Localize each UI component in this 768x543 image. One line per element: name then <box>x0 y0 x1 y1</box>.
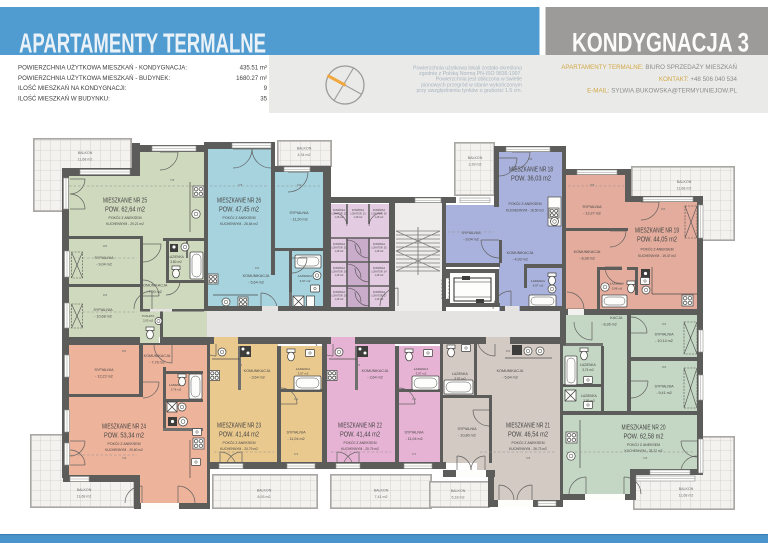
svg-text:POKÓJ Z ANEKSEM: POKÓJ Z ANEKSEM <box>223 215 256 220</box>
svg-text:- 4,93 m2: - 4,93 m2 <box>512 258 528 262</box>
svg-text:ŁAZIENKA: ŁAZIENKA <box>168 255 184 259</box>
svg-text:SYPIALNIA: SYPIALNIA <box>93 308 113 312</box>
svg-text:3,97 m2: 3,97 m2 <box>300 279 311 283</box>
svg-text:ŁAZIENKA: ŁAZIENKA <box>452 372 468 376</box>
svg-text:E-MAIL: SYLWIA.BUKOWSKA@TERMYU: E-MAIL: SYLWIA.BUKOWSKA@TERMYUNIEJOW.PL <box>587 88 737 95</box>
svg-text:405: 405 <box>238 363 243 367</box>
svg-text:1,28 m2: 1,28 m2 <box>335 298 344 301</box>
svg-text:APARTAMENTY TERMALNE: BIURO SP: APARTAMENTY TERMALNE: BIURO SPRZEDAŻY MI… <box>561 64 737 71</box>
svg-text:KOMUNIKACJA: KOMUNIKACJA <box>244 369 271 373</box>
svg-text:3,76 m2: 3,76 m2 <box>171 388 182 392</box>
svg-text:3,39 m2: 3,39 m2 <box>469 163 482 167</box>
svg-text:MIESZKANIE NR 24: MIESZKANIE NR 24 <box>102 424 146 431</box>
svg-text:4,97 m2: 4,97 m2 <box>533 284 544 288</box>
svg-text:SYPIALNIA: SYPIALNIA <box>582 205 602 209</box>
svg-text:BALKON: BALKON <box>77 488 92 492</box>
svg-text:274: 274 <box>412 397 417 401</box>
svg-text:POKÓJ Z ANEKSEM: POKÓJ Z ANEKSEM <box>512 440 545 445</box>
svg-text:SYPIALNIA: SYPIALNIA <box>94 368 114 372</box>
svg-text:BALKON: BALKON <box>468 156 483 160</box>
svg-text:1,28 m2: 1,28 m2 <box>335 250 344 253</box>
svg-text:728: 728 <box>643 456 648 460</box>
svg-text:KUCHENNYM - 20,79 m2: KUCHENNYM - 20,79 m2 <box>341 447 379 451</box>
svg-text:ŁAZIENKA: ŁAZIENKA <box>296 367 311 371</box>
svg-text:KONTAKT: +48 506 040 534: KONTAKT: +48 506 040 534 <box>659 76 738 83</box>
svg-text:286: 286 <box>122 349 127 353</box>
svg-text:- 12,22 m2: - 12,22 m2 <box>95 375 113 379</box>
svg-text:ILOŚĆ MIESZKAŃ NA KONDYGNACJI:: ILOŚĆ MIESZKAŃ NA KONDYGNACJI: <box>18 84 127 92</box>
svg-text:- 8,38 m2: - 8,38 m2 <box>579 257 595 261</box>
svg-text:11,68 m2: 11,68 m2 <box>679 494 694 498</box>
svg-text:8,93 m2: 8,93 m2 <box>258 495 271 499</box>
svg-text:2,03 m2: 2,03 m2 <box>143 319 154 323</box>
svg-text:- 5,64 m2: - 5,64 m2 <box>248 281 264 285</box>
svg-text:MIESZKANIE NR 26: MIESZKANIE NR 26 <box>217 198 261 205</box>
svg-text:MIESZKANIE NR 22: MIESZKANIE NR 22 <box>338 423 382 430</box>
svg-text:35: 35 <box>260 95 267 102</box>
svg-text:MIESZKANIE NR 21: MIESZKANIE NR 21 <box>506 423 550 430</box>
svg-text:- 10,80 m2: - 10,80 m2 <box>458 434 476 438</box>
svg-text:POKÓJ Z ANEKSEM: POKÓJ Z ANEKSEM <box>109 215 142 220</box>
svg-text:BALKON: BALKON <box>451 489 466 493</box>
svg-text:POKÓJ Z ANEKSEM: POKÓJ Z ANEKSEM <box>223 440 256 445</box>
svg-text:738: 738 <box>170 178 175 182</box>
svg-text:- 9,41 m2: - 9,41 m2 <box>656 391 672 395</box>
svg-text:1,28 m2: 1,28 m2 <box>354 216 363 219</box>
svg-text:366: 366 <box>662 365 667 369</box>
svg-text:KOMUNIKACJA: KOMUNIKACJA <box>497 369 524 373</box>
svg-text:MIESZKANIE NR 19: MIESZKANIE NR 19 <box>635 228 679 235</box>
svg-text:ŁAZIENKA: ŁAZIENKA <box>580 363 596 367</box>
svg-text:MIESZKANIE NR 20: MIESZKANIE NR 20 <box>622 425 666 432</box>
svg-text:- 7,00 m2: - 7,00 m2 <box>146 290 162 294</box>
svg-text:1,28 m2: 1,28 m2 <box>375 274 384 277</box>
svg-text:11,68 m2: 11,68 m2 <box>677 187 692 191</box>
svg-text:SYPIALNIA: SYPIALNIA <box>404 431 424 435</box>
svg-text:KUCHENNYM - 19,47 m2: KUCHENNYM - 19,47 m2 <box>638 254 676 258</box>
svg-text:- 5,64 m2: - 5,64 m2 <box>502 376 518 380</box>
svg-text:KUCHENNYM - 26,73 m2: KUCHENNYM - 26,73 m2 <box>509 447 547 451</box>
svg-text:POWIERZCHNIA UŻYTKOWA MIESZKAŃ: POWIERZCHNIA UŻYTKOWA MIESZKAŃ - KONDYGN… <box>18 65 187 72</box>
svg-text:1,28 m2: 1,28 m2 <box>335 274 344 277</box>
svg-text:288: 288 <box>528 157 533 161</box>
svg-text:435.51 m²: 435.51 m² <box>240 65 267 72</box>
svg-text:KOMUNIKACJA: KOMUNIKACJA <box>507 251 534 255</box>
svg-text:APARTAMENTY TERMALNE: APARTAMENTY TERMALNE <box>19 28 266 59</box>
svg-text:KONDYGNACJA 3: KONDYGNACJA 3 <box>572 28 749 58</box>
svg-text:POKÓJ Z ANEKSEM: POKÓJ Z ANEKSEM <box>344 440 377 445</box>
svg-text:5,18 m2: 5,18 m2 <box>452 496 465 500</box>
svg-text:ILOŚĆ MIESZKAŃ W BUDYNKU:: ILOŚĆ MIESZKAŃ W BUDYNKU: <box>18 94 110 102</box>
svg-text:POW. 62,64 m2: POW. 62,64 m2 <box>105 206 145 213</box>
svg-text:278: 278 <box>238 183 243 187</box>
svg-text:KOMUNIKACJA: KOMUNIKACJA <box>144 354 171 358</box>
svg-text:7,41 m2: 7,41 m2 <box>375 495 388 499</box>
svg-text:POW. 41,44 m2: POW. 41,44 m2 <box>219 431 259 438</box>
svg-text:BALKON: BALKON <box>78 151 93 155</box>
svg-text:- 10,14 m2: - 10,14 m2 <box>655 339 673 343</box>
svg-text:306: 306 <box>103 293 108 297</box>
svg-text:3,97 m2: 3,97 m2 <box>416 372 427 376</box>
svg-text:728: 728 <box>526 456 531 460</box>
svg-text:POW. 47,45 m2: POW. 47,45 m2 <box>219 206 259 213</box>
svg-text:BALKON: BALKON <box>677 180 692 184</box>
svg-text:POW. 36,03 m2: POW. 36,03 m2 <box>511 175 551 182</box>
svg-text:1,28 m2: 1,28 m2 <box>375 216 384 219</box>
svg-text:POKÓJ Z ANEKSEM: POKÓJ Z ANEKSEM <box>641 247 674 252</box>
svg-text:SYPIALNIA: SYPIALNIA <box>461 231 481 235</box>
svg-text:TOALETA: TOALETA <box>142 314 155 318</box>
svg-text:KUCHENNYM - 26,64 m2: KUCHENNYM - 26,64 m2 <box>220 222 258 226</box>
svg-text:KOMUNIKACJA: KOMUNIKACJA <box>574 250 601 254</box>
svg-text:MIESZKANIE NR 25: MIESZKANIE NR 25 <box>103 198 147 205</box>
svg-text:11,68 m2: 11,68 m2 <box>77 495 92 499</box>
svg-text:274: 274 <box>294 397 299 401</box>
svg-text:SYPIALNIA: SYPIALNIA <box>654 333 674 337</box>
svg-text:- 8,36 m2: - 8,36 m2 <box>601 323 617 327</box>
svg-text:POW. 44,05 m2: POW. 44,05 m2 <box>637 236 677 243</box>
svg-text:POKÓJ Z ANEKSEM: POKÓJ Z ANEKSEM <box>108 441 141 446</box>
svg-text:274: 274 <box>294 452 299 456</box>
svg-text:209: 209 <box>297 183 302 187</box>
svg-text:- 9,04 m2: - 9,04 m2 <box>96 263 112 267</box>
svg-text:POKÓJ Z ANEKSEM: POKÓJ Z ANEKSEM <box>627 442 660 447</box>
svg-text:ŁAZIENKA: ŁAZIENKA <box>531 279 545 283</box>
svg-text:- 9,04 m2: - 9,04 m2 <box>463 238 479 242</box>
svg-text:MIESZKANIE NR 23: MIESZKANIE NR 23 <box>217 423 261 430</box>
svg-text:ŁAZIENKA: ŁAZIENKA <box>298 274 313 278</box>
svg-text:- 12,27 m2: - 12,27 m2 <box>583 212 601 216</box>
svg-text:KUCHENNYM - 16,50 m2: KUCHENNYM - 16,50 m2 <box>506 208 544 212</box>
svg-text:- 3,64 m2: - 3,64 m2 <box>367 376 383 380</box>
svg-text:SYPIALNIA: SYPIALNIA <box>286 431 306 435</box>
svg-text:KUCHENNYM - 20,79 m2: KUCHENNYM - 20,79 m2 <box>220 447 258 451</box>
svg-text:KUCHENNYM - 29,60 m2: KUCHENNYM - 29,60 m2 <box>105 448 143 452</box>
svg-text:274: 274 <box>412 452 417 456</box>
svg-text:1,28 m2: 1,28 m2 <box>375 250 384 253</box>
svg-text:3,98 m2: 3,98 m2 <box>612 287 623 291</box>
svg-text:366: 366 <box>662 322 667 326</box>
svg-text:POW. 53,34 m2: POW. 53,34 m2 <box>104 432 144 439</box>
svg-text:POW. 46,54 m2: POW. 46,54 m2 <box>508 431 548 438</box>
svg-text:405: 405 <box>356 363 361 367</box>
svg-text:SYPIALNIA: SYPIALNIA <box>457 427 477 431</box>
svg-text:11,68 m2: 11,68 m2 <box>78 158 93 162</box>
svg-text:KOMUNIKACJA: KOMUNIKACJA <box>141 284 168 288</box>
svg-text:405: 405 <box>255 266 260 270</box>
svg-text:KOMUNIKACJA: KOMUNIKACJA <box>362 369 389 373</box>
svg-text:POWIERZCHNIA UŻYTKOWA MIESZKAŃ: POWIERZCHNIA UŻYTKOWA MIESZKAŃ - BUDYNEK… <box>18 75 170 82</box>
svg-text:3,74 m2: 3,74 m2 <box>582 368 594 372</box>
svg-text:BALKON: BALKON <box>679 487 694 491</box>
svg-text:KUCHENNYM - 28,22 m2: KUCHENNYM - 28,22 m2 <box>625 449 663 453</box>
svg-text:BALKON: BALKON <box>257 489 272 493</box>
svg-text:BALKON: BALKON <box>297 147 312 151</box>
svg-text:KOMUNIKACJA: KOMUNIKACJA <box>243 274 270 278</box>
svg-text:3,97 m2: 3,97 m2 <box>298 372 309 376</box>
svg-text:ŁAZIENKA: ŁAZIENKA <box>414 367 429 371</box>
svg-text:306: 306 <box>661 207 666 211</box>
svg-text:POW. 41,44 m2: POW. 41,44 m2 <box>340 431 380 438</box>
svg-text:- 11,04 m2: - 11,04 m2 <box>287 437 304 441</box>
svg-text:KUCHENNYM - 29,21 m2: KUCHENNYM - 29,21 m2 <box>106 222 144 226</box>
svg-text:- 11,20 m2: - 11,20 m2 <box>290 218 307 222</box>
svg-text:4,34 m2: 4,34 m2 <box>298 153 311 157</box>
svg-text:1,28 m2: 1,28 m2 <box>375 298 384 301</box>
svg-text:3,80 m2: 3,80 m2 <box>170 260 182 264</box>
svg-text:- 7,76 m2: - 7,76 m2 <box>149 361 165 365</box>
svg-text:- 10,68 m2: - 10,68 m2 <box>94 315 112 319</box>
svg-text:738: 738 <box>122 456 127 460</box>
svg-text:- 3,64 m2: - 3,64 m2 <box>249 376 265 380</box>
svg-text:288: 288 <box>590 183 595 187</box>
svg-text:286: 286 <box>103 244 108 248</box>
svg-text:SYPIALNIA: SYPIALNIA <box>289 211 309 215</box>
svg-text:SYPIALNIA: SYPIALNIA <box>654 385 674 389</box>
svg-text:1680.27 m²: 1680.27 m² <box>236 75 267 82</box>
svg-text:POW. 62,58 m2: POW. 62,58 m2 <box>624 433 664 440</box>
svg-text:ŁAZIENKA: ŁAZIENKA <box>581 394 597 398</box>
svg-text:405: 405 <box>506 349 511 353</box>
svg-text:- 11,04 m2: - 11,04 m2 <box>405 437 422 441</box>
svg-text:POKÓJ Z ANEKSEM: POKÓJ Z ANEKSEM <box>509 201 542 206</box>
svg-text:BALKON: BALKON <box>374 489 389 493</box>
svg-text:przy uwzględnieniu tynków o gr: przy uwzględnieniu tynków o grubości 1.5… <box>416 88 522 94</box>
